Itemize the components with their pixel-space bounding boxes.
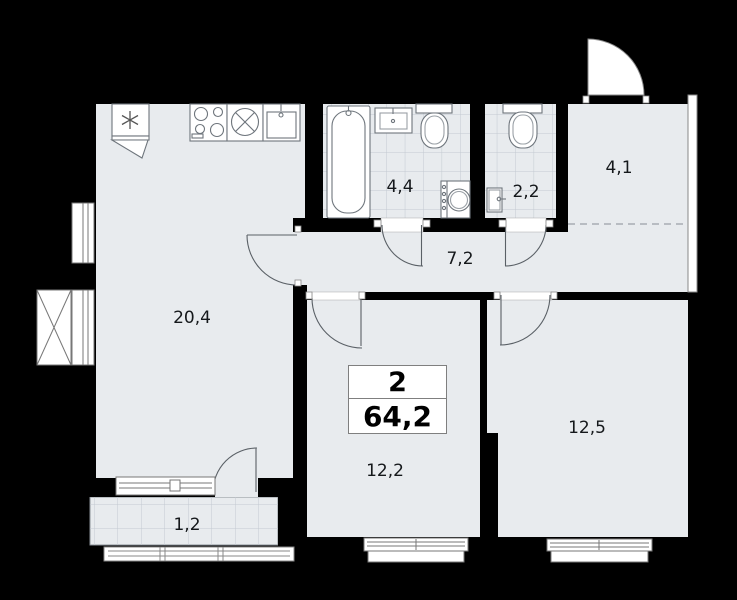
balcony-door-opening [215, 478, 258, 497]
bathroom-door-opening [381, 218, 423, 232]
bedroom2-window [547, 539, 652, 562]
wall-bath-toilet [470, 89, 485, 232]
ac-basket-icon [37, 290, 71, 365]
balcony-window [116, 477, 215, 495]
apartment-info-box: 2 64,2 [348, 365, 447, 434]
wall-living-bedroom1 [293, 285, 307, 537]
room-label-kitchen-living: 20,4 [173, 308, 211, 328]
toilet-door-opening [506, 218, 546, 232]
room-label-bathroom: 4,4 [386, 177, 413, 197]
washing-machine-icon [441, 181, 470, 218]
rooms-count: 2 [349, 366, 446, 399]
room-label-hallway: 7,2 [446, 249, 473, 269]
wall-hall-bottom-mid [360, 292, 500, 300]
room-label-bedroom-2: 12,5 [568, 418, 606, 438]
wall-bedrooms-thin [480, 300, 487, 433]
bedroom1-window [364, 538, 468, 562]
kitchen-basin-icon [263, 104, 300, 141]
bedroom2-door-opening [500, 292, 552, 300]
wall-toilet-entry [556, 89, 568, 232]
room-label-entry-hall: 4,1 [605, 158, 632, 178]
wall-right [697, 95, 710, 563]
bathtub-icon [327, 106, 370, 218]
room-label-toilet: 2,2 [512, 182, 539, 202]
wall-hall-bottom-right [552, 292, 688, 300]
stove-icon [190, 104, 227, 141]
kitchen-sink-icon [227, 104, 263, 141]
floor-plan: 20,4 4,4 2,2 4,1 7,2 12,2 12,5 1,2 2 64,… [0, 0, 737, 600]
balcony-railing [104, 547, 294, 561]
bathroom-sink-icon [375, 108, 412, 133]
room-label-bedroom-1: 12,2 [366, 461, 404, 481]
wall-strip-right [688, 95, 697, 292]
wall-bedrooms-thick [480, 433, 498, 537]
room-label-balcony: 1,2 [173, 515, 200, 535]
floor-plan-drawing [0, 0, 737, 600]
wall-balcony-side [278, 497, 293, 537]
bedroom1-door-opening [312, 292, 360, 300]
wall-kitchen-bath [305, 89, 323, 218]
total-area: 64,2 [349, 399, 446, 433]
